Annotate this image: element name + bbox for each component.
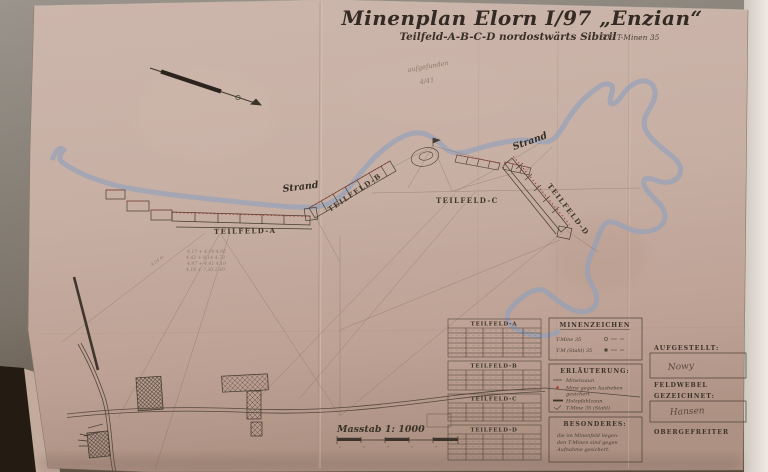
- gezeichnet-signature: Hansen: [669, 406, 705, 418]
- paper-sheet: [28, 0, 748, 472]
- map-photo-canvas: Minenplan Elorn I/97 „Enzian“ Teilfeld-A…: [0, 0, 768, 472]
- feldwebel-label: FELDWEBEL: [654, 382, 708, 389]
- table-title: TEILFELD-C: [471, 397, 518, 403]
- pencil-measurement-row: 4,18 + 7,30 2,49: [185, 267, 225, 273]
- legend-row: den T-Minen sind gegen: [557, 440, 618, 446]
- aufgestellt-signature: Nowy: [667, 361, 696, 373]
- legend-title: MINENZEICHEN: [559, 322, 630, 329]
- table-title: TEILFELD-A: [471, 322, 518, 328]
- table-title: TEILFELD-B: [470, 364, 517, 370]
- legend-row: T-Mine 35: [556, 337, 581, 343]
- page-subtitle: Teilfeld-A-B-C-D nordostwärts Sibiril: [399, 31, 616, 43]
- building-hatched: [222, 374, 269, 392]
- red-mine-dot-symbol: [556, 386, 559, 389]
- legend-row: die im Minenfeld liegen-: [557, 433, 619, 439]
- legend-row: T-M (Stahl) 35: [556, 347, 592, 354]
- aufgestellt-label: AUFGESTELLT:: [653, 345, 719, 352]
- teilfeld-c-label: TEILFELD-C: [436, 196, 499, 205]
- legend-row: Aufnahme gesichert.: [556, 447, 610, 453]
- building-hatched: [251, 422, 262, 436]
- legend-row: Minenzaun: [565, 378, 594, 384]
- table-title: TEILFELD-D: [470, 428, 517, 434]
- scale-label: Masstab 1: 1000: [336, 424, 425, 435]
- building-hatched: [87, 431, 110, 458]
- legend-title: BESONDERES:: [563, 421, 626, 428]
- building-hatched: [136, 376, 163, 411]
- mine-count-note: 506 T-Minen 35: [600, 33, 660, 42]
- pencil-measurement-row: 4,42 + 8,14 4,73: [185, 255, 225, 261]
- teilfeld-a-label: TEILFELD-A: [214, 226, 277, 236]
- legend-title: ERLÄUTERUNG:: [560, 368, 630, 375]
- photo-of-mine-plan-document: Minenplan Elorn I/97 „Enzian“ Teilfeld-A…: [0, 0, 768, 472]
- legend-row: Holzpfahlzaun: [565, 399, 603, 405]
- legend-row: gesichert: [566, 392, 591, 398]
- legend-row: T-Mine 35 (Stahl): [566, 405, 610, 412]
- obergefreiter-label: OBERGEFREITER: [654, 429, 729, 436]
- pencil-measurement-row: 4,97 + 4,41 4,19: [186, 261, 226, 267]
- gezeichnet-label: GEZEICHNET:: [654, 393, 715, 400]
- page-title: Minenplan Elorn I/97 „Enzian“: [340, 6, 702, 30]
- pencil-measurement-row: 4,17 + 4,14 4,95: [186, 249, 226, 255]
- building-hatched: [247, 391, 261, 419]
